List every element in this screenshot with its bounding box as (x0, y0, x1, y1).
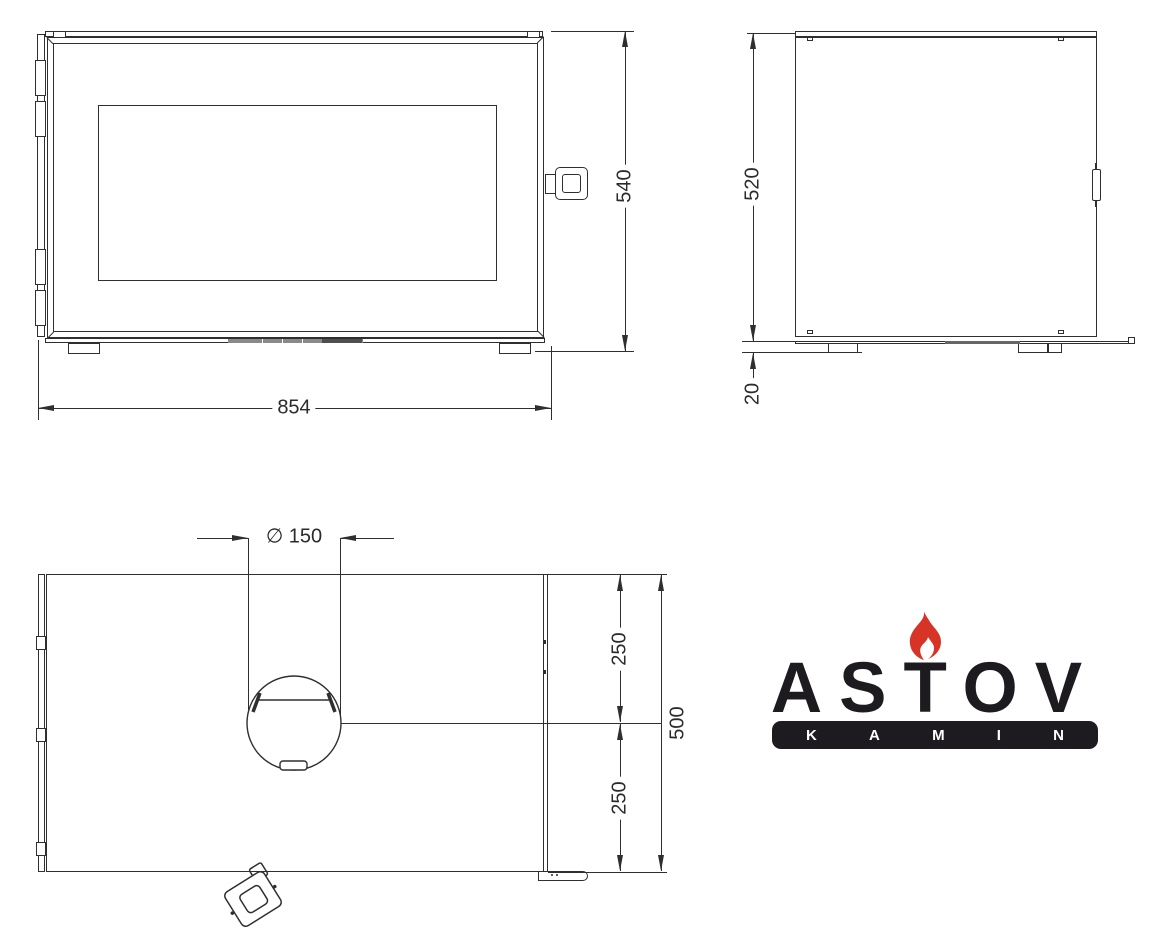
subbrand-letter: M (932, 728, 945, 743)
weld-mark (807, 37, 813, 41)
bracket-rivet (551, 874, 553, 876)
subbrand-letter: K (806, 728, 817, 743)
door-handle-inner (562, 174, 581, 193)
dimension-label-total-depth: 500 (667, 701, 690, 744)
arrowhead-down (658, 855, 664, 871)
air-control-lever (322, 339, 362, 343)
wall-joint-dot (544, 670, 546, 674)
arrowhead-up (622, 31, 628, 47)
side-foot-front (828, 343, 858, 353)
dimension-label-flue-to-front: 250 (609, 776, 632, 819)
arrowhead-up (658, 575, 664, 591)
weld-mark (807, 330, 813, 334)
wall-joint-dot (544, 640, 546, 644)
weld-mark (1058, 330, 1064, 334)
arrowhead-left (38, 405, 54, 411)
hinge-block (35, 249, 46, 285)
arrowhead-left (340, 535, 356, 541)
extension-line (551, 346, 552, 420)
side-base-rod (945, 341, 1020, 344)
arrowhead-up (750, 33, 756, 49)
dimension-label-depth: 520 (742, 162, 765, 205)
top-hinge-mark (36, 728, 46, 742)
dimension-label-floor-gap: 20 (742, 378, 765, 410)
flue-outlet-circle (240, 669, 350, 779)
brand-wordmark: ASTOV (770, 661, 1100, 717)
technical-drawing-canvas: 854 540 520 20 (0, 0, 1149, 931)
front-foot-right (499, 343, 531, 354)
arrowhead-down (622, 335, 628, 351)
top-front-edge-strip (38, 574, 45, 872)
dimension-label-height: 540 (614, 164, 637, 207)
subbrand-letter: A (869, 728, 880, 743)
top-hinge-mark (36, 842, 46, 856)
arrowhead-right (535, 405, 551, 411)
air-control-tick (302, 339, 303, 343)
flue-centerline (297, 723, 661, 724)
air-control-tick (282, 339, 283, 343)
dimension-label-flue-diameter: ∅ 150 (261, 526, 327, 549)
subbrand-letter: I (997, 728, 1001, 743)
floor-plate-lip (1128, 337, 1135, 344)
dimension-label-width: 854 (272, 397, 315, 420)
side-body (795, 37, 1097, 337)
side-handle-pin (1095, 163, 1097, 169)
subbrand-bar: K A M I N (772, 721, 1098, 749)
front-foot-left (68, 343, 100, 354)
dimension-line (661, 575, 662, 871)
hinge-block (35, 60, 46, 96)
arrowhead-right (232, 535, 248, 541)
extension-line (548, 574, 667, 575)
top-hinge-mark (36, 636, 46, 650)
side-foot-rear-pad (1048, 343, 1062, 353)
front-glass-window (98, 105, 497, 281)
hinge-block (35, 101, 46, 137)
subbrand-letter: N (1053, 728, 1064, 743)
arrowhead-up (750, 353, 756, 369)
air-control-tick (262, 339, 263, 343)
side-handle-profile (1092, 169, 1101, 201)
hinge-block (35, 290, 46, 326)
arrowhead-up (617, 724, 623, 740)
arrowhead-up (617, 575, 623, 591)
extension-line (548, 872, 667, 873)
arrowhead-down (617, 855, 623, 871)
arrowhead-down (750, 325, 756, 341)
dimension-label-flue-to-back: 250 (609, 627, 632, 670)
side-handle-pin (1095, 201, 1097, 207)
arrowhead-down (617, 706, 623, 722)
bracket-rivet (556, 874, 558, 876)
extension-line (535, 351, 634, 352)
weld-mark (1058, 37, 1064, 41)
side-foot-rear (1018, 343, 1048, 353)
